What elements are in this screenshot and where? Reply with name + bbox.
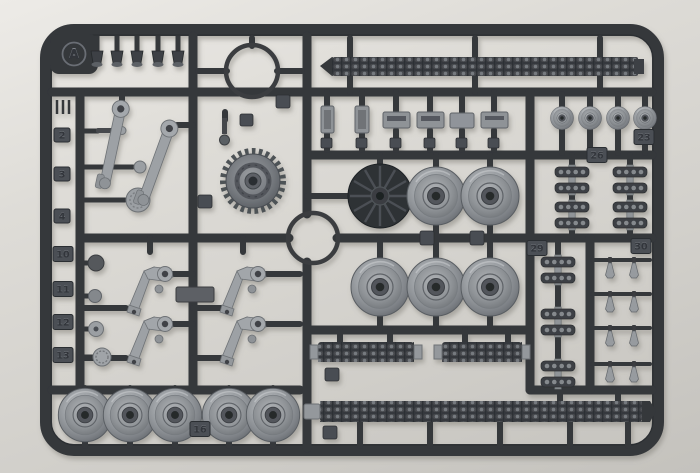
embossed-tab	[323, 426, 337, 439]
embossed-tab	[488, 138, 499, 148]
gate-letter-plate: A A	[50, 34, 98, 74]
track-link-cluster	[555, 200, 589, 230]
photo-backdrop: A A	[0, 0, 700, 473]
part-number-tab-11: 1111	[53, 282, 73, 297]
road-wheel	[407, 167, 465, 225]
small-pin-parts	[91, 36, 184, 67]
embossed-tab	[424, 138, 435, 148]
pin-part	[111, 36, 123, 67]
spoked-idler-wheel	[348, 164, 412, 228]
sprue-runner-a: A A	[41, 25, 663, 455]
return-roller	[606, 106, 629, 129]
track-length-bottom	[304, 401, 656, 422]
drive-sprocket	[223, 151, 283, 211]
road-wheel	[461, 167, 519, 225]
bracket-part	[176, 287, 214, 302]
suspension-bell-crank	[127, 267, 173, 317]
track-section-short	[434, 342, 530, 362]
part-number-tab-2: 22	[54, 128, 70, 142]
svg-text:12: 12	[56, 318, 69, 329]
svg-text:29: 29	[530, 244, 543, 255]
small-shaft-part	[220, 118, 230, 145]
part-number-tab-3: 33	[54, 167, 70, 181]
part-number-tab-23: 2323	[634, 130, 654, 145]
fitting-part	[321, 106, 334, 133]
embossed-tab	[325, 368, 339, 381]
svg-text:4: 4	[59, 212, 66, 223]
track-link-cluster	[555, 165, 589, 195]
part-number-tab-29: 2929	[527, 241, 547, 256]
track-link-cluster	[541, 307, 575, 337]
pin-part	[131, 36, 143, 67]
track-link-cluster	[541, 359, 575, 389]
fork-part	[57, 100, 69, 114]
hub-cap-part	[89, 322, 104, 337]
embossed-tab	[321, 138, 332, 148]
gear-disc-part	[93, 348, 111, 366]
embossed-tab	[390, 138, 401, 148]
svg-text:26: 26	[590, 151, 604, 162]
suspension-swing-arm	[95, 99, 131, 191]
embossed-tab	[276, 95, 290, 108]
track-length-top	[320, 57, 644, 76]
drum-part	[88, 255, 104, 271]
return-roller	[633, 106, 656, 129]
svg-text:23: 23	[637, 133, 650, 144]
fitting-part	[417, 112, 444, 128]
ring-part-center	[288, 213, 338, 263]
svg-text:11: 11	[56, 285, 69, 296]
fitting-part	[481, 112, 508, 128]
embossed-tab	[240, 114, 253, 126]
part-number-tab-16: 1616	[190, 422, 210, 437]
embossed-tab	[356, 138, 367, 148]
part-number-tab-12: 1212	[53, 315, 73, 330]
svg-text:A: A	[69, 48, 79, 63]
embossed-tab	[470, 231, 484, 245]
part-number-tab-4: 44	[54, 209, 70, 223]
embossed-tab	[456, 138, 467, 148]
road-wheel	[407, 258, 465, 316]
road-wheel	[246, 388, 299, 441]
embossed-tab	[420, 231, 434, 245]
track-link-cluster	[613, 165, 647, 195]
road-wheel	[461, 258, 519, 316]
pin-part	[152, 36, 164, 67]
fitting-part	[355, 106, 369, 133]
suspension-bell-crank	[220, 317, 266, 367]
svg-text:10: 10	[56, 250, 70, 261]
disc-part	[89, 290, 102, 303]
track-section-short	[310, 342, 422, 362]
svg-text:30: 30	[634, 242, 648, 253]
track-link-cluster	[613, 200, 647, 230]
svg-text:16: 16	[193, 425, 207, 436]
part-number-tab-10: 1010	[53, 247, 73, 262]
part-number-tab-13: 1313	[53, 348, 73, 363]
suspension-bell-crank	[220, 267, 266, 317]
svg-text:2: 2	[59, 131, 66, 142]
svg-text:13: 13	[56, 351, 69, 362]
dome-part	[134, 161, 146, 173]
fitting-part	[450, 113, 474, 128]
svg-text:3: 3	[59, 170, 66, 181]
part-number-tab-30: 3030	[631, 239, 651, 254]
embossed-tab	[198, 195, 212, 208]
pin-part	[172, 36, 184, 67]
fitting-part	[383, 112, 410, 128]
return-roller	[550, 106, 573, 129]
road-wheel	[351, 258, 409, 316]
return-roller	[578, 106, 601, 129]
sprue-photo: A A	[0, 0, 700, 473]
suspension-bell-crank	[127, 317, 173, 367]
part-number-tab-26: 2626	[587, 148, 607, 163]
track-link-cluster	[541, 255, 575, 285]
small-fittings-row	[321, 106, 508, 133]
